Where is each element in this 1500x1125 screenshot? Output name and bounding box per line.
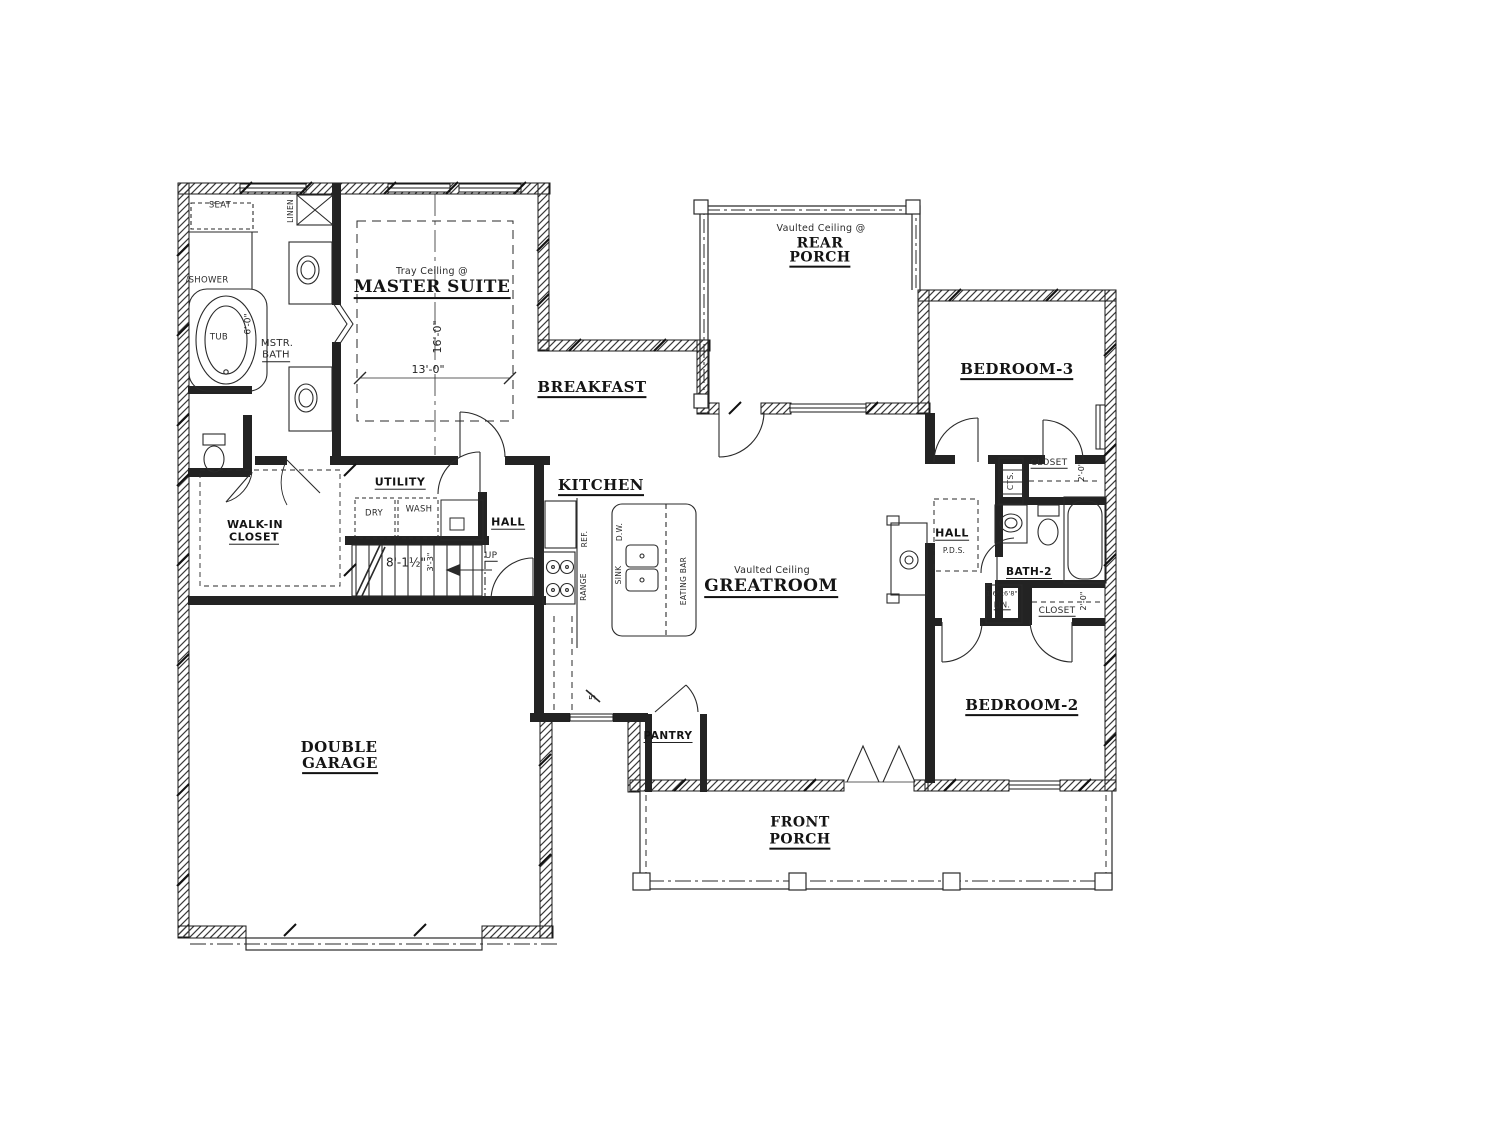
front-porch-line2: PORCH: [769, 833, 830, 850]
utility-label: UTILITY: [375, 477, 426, 490]
stairs: [352, 545, 492, 598]
master-suite-ceiling-note: Tray Ceiling @: [396, 267, 468, 277]
bath2-label: BATH-2: [1006, 567, 1052, 579]
tub-dimension: 6'-0": [244, 313, 253, 334]
front-porch-outline: [633, 791, 1112, 890]
bedroom2-closet-label: CLOSET: [1039, 607, 1076, 617]
master-bath-label-line1: MSTR.: [261, 339, 293, 350]
garage-line2: GARAGE: [302, 756, 378, 774]
seat-label: SEAT: [209, 202, 231, 211]
rear-porch-line2: PORCH: [789, 251, 850, 268]
dishwasher-label: D.W.: [616, 523, 624, 541]
fireplace: [887, 516, 927, 603]
tub-label: TUB: [210, 334, 228, 343]
bedroom2-closet-dim: 2'-0": [1080, 592, 1088, 611]
dryer-label: DRY: [365, 510, 383, 519]
hall-bedroom-label: HALL: [935, 528, 969, 541]
eating-bar-label: EATING BAR: [680, 557, 688, 605]
pds-note: P.D.S.: [943, 547, 965, 555]
kitchen-counter-dim: 5': [589, 692, 598, 700]
master-suite-label: MASTER SUITE: [354, 279, 511, 299]
range-label: RANGE: [580, 573, 588, 601]
walk-in-closet-line2: CLOSET: [229, 532, 279, 545]
hall-main-label: HALL: [491, 517, 525, 530]
walk-in-closet-line1: WALK-IN: [227, 519, 283, 531]
stair-up-label: UP: [485, 552, 498, 562]
garage-door: [190, 938, 560, 950]
stair-width-dim: 3'-3": [427, 553, 435, 572]
kitchen-label: KITCHEN: [558, 478, 644, 496]
floor-plan: Tray Ceiling @ MASTER SUITE 16'-0" 13'-0…: [0, 0, 1500, 1125]
master-bath-label-line2: BATH: [262, 350, 290, 362]
master-suite-width-dim: 13'-0": [411, 364, 444, 376]
bedroom3-closet-dim: 2'-0": [1078, 463, 1086, 482]
master-suite-depth-dim: 16'-0": [432, 320, 444, 353]
sink-label: SINK: [615, 566, 623, 585]
stair-run-dim: 8'-1½": [386, 557, 426, 570]
front-porch-line1: FRONT: [770, 816, 829, 831]
greatroom-ceiling-note: Vaulted Ceiling: [734, 566, 810, 576]
bedroom3-closet-label: CLOSET: [1031, 459, 1068, 469]
linen-closet-door-size: 1'6"x6'8": [986, 591, 1018, 598]
breakfast-label: BREAKFAST: [537, 380, 646, 398]
rear-porch-ceiling-note: Vaulted Ceiling @: [777, 224, 866, 234]
exterior-walls: [178, 183, 1116, 938]
shower-label: /SHOWER: [185, 277, 228, 286]
refrigerator-label: REF.: [581, 531, 589, 548]
bedroom3-label: BEDROOM-3: [960, 362, 1073, 380]
greatroom-label: GREATROOM: [704, 578, 838, 598]
pantry-label: PANTRY: [644, 731, 693, 743]
linen-closet-label: LIN.: [994, 601, 1011, 610]
bedroom2-label: BEDROOM-2: [965, 698, 1078, 716]
linen-label: LINEN: [287, 199, 295, 223]
coats-closet-label: CTS.: [1007, 472, 1015, 490]
washer-label: WASH: [406, 506, 433, 515]
floor-plan-linework: [0, 0, 1500, 1125]
